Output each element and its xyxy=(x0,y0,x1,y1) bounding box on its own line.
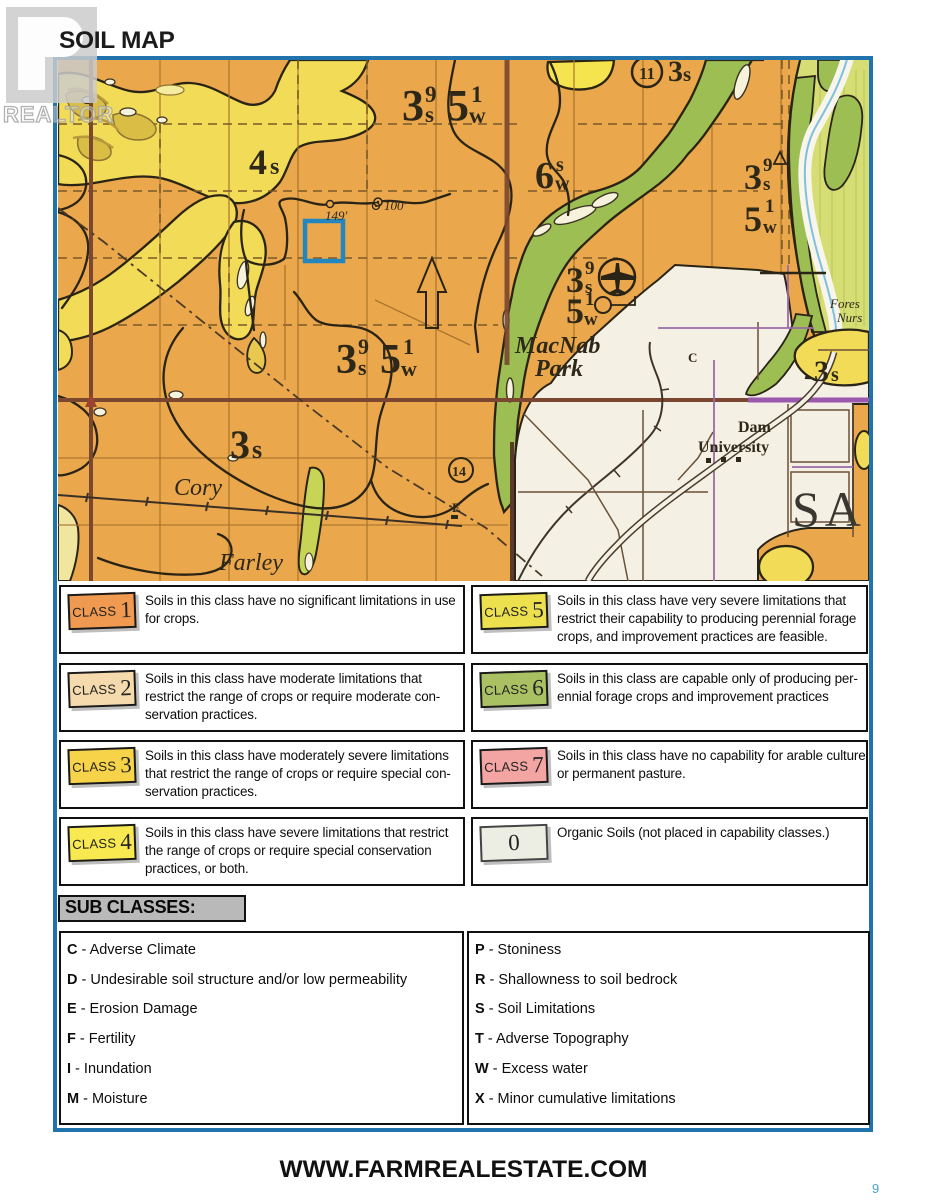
svg-text:100′: 100′ xyxy=(384,198,407,213)
svg-text:14: 14 xyxy=(452,465,466,480)
svg-text:w: w xyxy=(584,309,598,330)
svg-text:s: s xyxy=(358,355,367,380)
svg-text:s: s xyxy=(252,435,262,464)
svg-text:w: w xyxy=(469,103,486,128)
svg-text:s: s xyxy=(763,174,770,195)
svg-text:Nurs: Nurs xyxy=(836,310,862,325)
svg-text:SA: SA xyxy=(792,481,866,537)
svg-text:5: 5 xyxy=(744,199,762,239)
svg-text:3: 3 xyxy=(744,157,762,197)
svg-text:5: 5 xyxy=(380,337,401,383)
svg-text:E: E xyxy=(452,500,461,515)
svg-text:5: 5 xyxy=(566,291,584,331)
svg-text:149′: 149′ xyxy=(325,208,348,223)
svg-text:s: s xyxy=(425,102,434,127)
svg-text:w: w xyxy=(401,356,417,381)
svg-text:4: 4 xyxy=(249,142,267,182)
svg-text:3: 3 xyxy=(230,422,250,467)
svg-text:9: 9 xyxy=(763,155,773,176)
svg-text:1: 1 xyxy=(585,289,595,310)
svg-text:9: 9 xyxy=(585,258,595,279)
svg-text:Fores: Fores xyxy=(829,296,860,311)
svg-text:Dam: Dam xyxy=(738,419,772,436)
svg-text:3: 3 xyxy=(814,355,829,388)
svg-text:Cory: Cory xyxy=(174,475,222,501)
svg-text:University: University xyxy=(698,439,769,456)
svg-text:3: 3 xyxy=(402,81,424,130)
svg-text:C: C xyxy=(688,350,697,365)
svg-text:1: 1 xyxy=(765,196,775,217)
svg-text:w: w xyxy=(555,173,570,195)
svg-text:Park: Park xyxy=(534,356,583,382)
svg-text:Farley: Farley xyxy=(218,550,283,576)
svg-text:11: 11 xyxy=(639,64,655,83)
svg-text:w: w xyxy=(763,217,777,238)
svg-text:6: 6 xyxy=(535,155,554,197)
svg-text:5: 5 xyxy=(447,81,469,130)
svg-text:3: 3 xyxy=(336,337,357,383)
svg-text:s: s xyxy=(831,364,839,386)
svg-text:s: s xyxy=(270,154,279,180)
svg-text:3s: 3s xyxy=(668,60,691,88)
